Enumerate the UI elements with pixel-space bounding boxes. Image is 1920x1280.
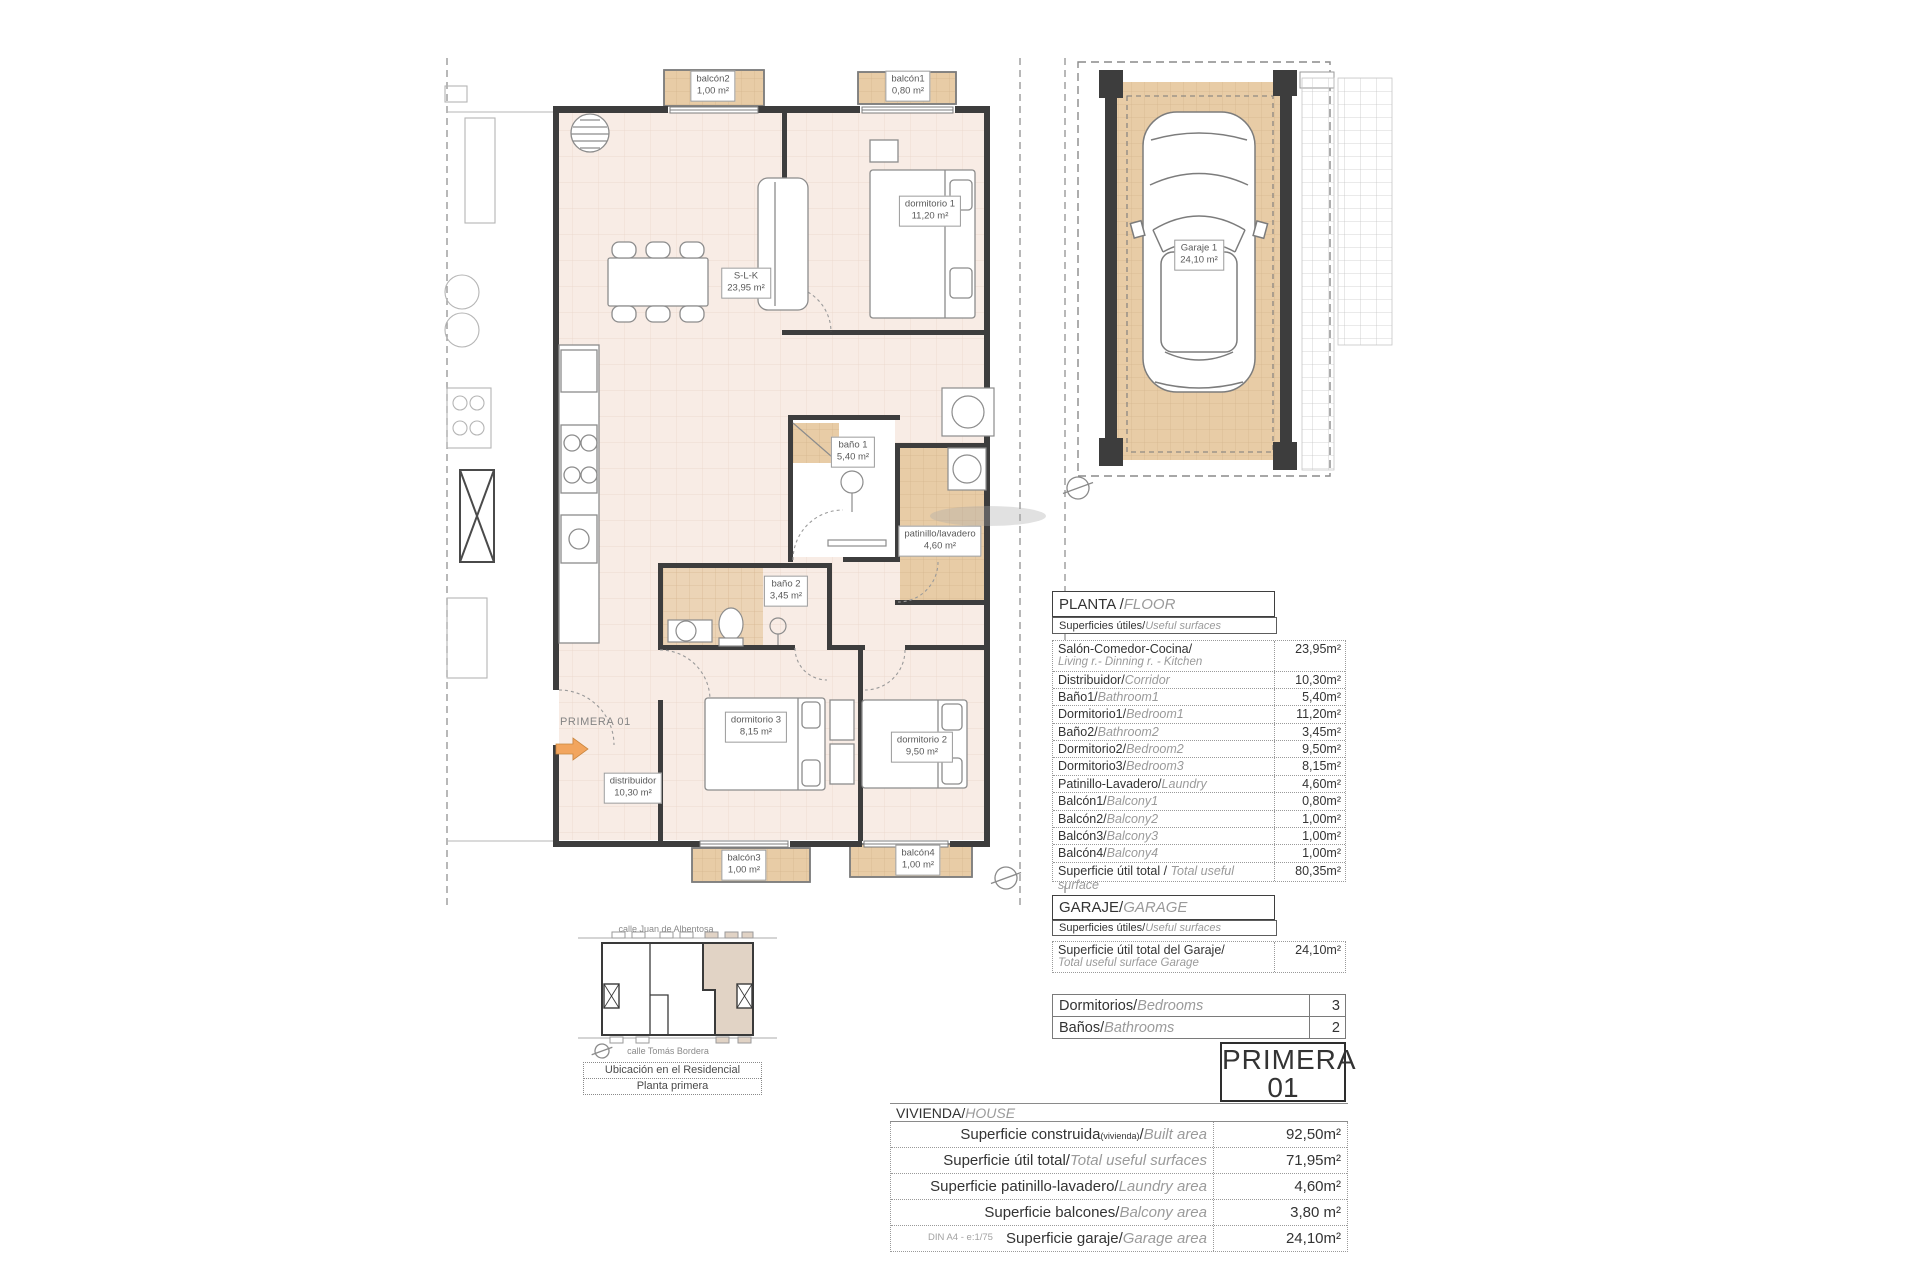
- table-row: Dormitorios/Bedrooms 3: [1053, 995, 1345, 1017]
- room-label-bano1: baño 15,40 m²: [831, 437, 875, 468]
- scale-note: DIN A4 - e:1/75: [928, 1232, 993, 1243]
- garage-section-subtitle: Superficies útiles/Useful surfaces: [1052, 920, 1277, 936]
- floorplan-sheet: balcón21,00 m² balcón10,80 m² S-L-K23,95…: [0, 0, 1920, 1280]
- floor-section-title: PLANTA / FLOOR: [1052, 591, 1275, 617]
- garage-plan: [1078, 62, 1392, 476]
- table-row: Superficie patinillo-lavadero/Laundry ar…: [891, 1174, 1347, 1200]
- garage-surface-table: Superficie útil total del Garaje/Total u…: [1052, 941, 1346, 973]
- room-label-balcon3: balcón31,00 m²: [721, 850, 766, 881]
- rooms-count-table: Dormitorios/Bedrooms 3 Baños/Bathrooms 2: [1052, 994, 1346, 1039]
- room-label-dormitorio2: dormitorio 29,50 m²: [891, 732, 953, 763]
- room-label-garaje1: Garaje 124,10 m²: [1174, 240, 1224, 271]
- room-label-dormitorio3: dormitorio 38,15 m²: [725, 712, 787, 743]
- table-row: Baño2/Bathroom2 3,45m²: [1053, 724, 1345, 741]
- table-row: Dormitorio1/Bedroom1 11,20m²: [1053, 706, 1345, 723]
- location-diagram: [578, 932, 777, 1043]
- street-label-bottom: calle Tomás Bordera: [627, 1046, 709, 1056]
- table-row: Dormitorio2/Bedroom2 9,50m²: [1053, 741, 1345, 758]
- room-label-distribuidor: distribuidor10,30 m²: [604, 773, 662, 804]
- room-label-bano2: baño 23,45 m²: [764, 576, 808, 607]
- room-label-balcon1: balcón10,80 m²: [885, 71, 930, 102]
- watermark-smudge: [930, 506, 1046, 526]
- floor-total-row: Superficie útil total / Total useful sur…: [1053, 863, 1345, 881]
- room-label-dormitorio1: dormitorio 111,20 m²: [899, 196, 961, 227]
- table-row: Patinillo-Lavadero/Laundry 4,60m²: [1053, 776, 1345, 793]
- table-row: Baños/Bathrooms 2: [1053, 1017, 1345, 1038]
- location-caption: Ubicación en el Residencial Planta prime…: [583, 1062, 762, 1095]
- table-row: Dormitorio3/Bedroom3 8,15m²: [1053, 758, 1345, 775]
- room-label-balcon2: balcón21,00 m²: [690, 71, 735, 102]
- room-label-balcon4: balcón41,00 m²: [895, 845, 940, 876]
- street-label-top: calle Juan de Albentosa: [618, 924, 713, 934]
- plan-drawing: [0, 0, 1920, 1280]
- table-row: Balcón2/Balcony2 1,00m²: [1053, 811, 1345, 828]
- table-row: Superficie útil total/Total useful surfa…: [891, 1148, 1347, 1174]
- floor-surfaces-table: Salón-Comedor-Cocina/Living r.- Dinning …: [1052, 640, 1346, 882]
- table-row: Salón-Comedor-Cocina/Living r.- Dinning …: [1053, 641, 1345, 672]
- table-row: Balcón1/Balcony1 0,80m²: [1053, 793, 1345, 810]
- table-row: Balcón4/Balcony4 1,00m²: [1053, 845, 1345, 862]
- room-label-slk: S-L-K23,95 m²: [721, 268, 771, 299]
- table-row: Distribuidor/Corridor 10,30m²: [1053, 672, 1345, 689]
- neighbour-fragments: [445, 86, 553, 841]
- table-row: Baño1/Bathroom1 5,40m²: [1053, 689, 1345, 706]
- elevator-shaft: [460, 470, 494, 562]
- table-row: Superficie útil total del Garaje/Total u…: [1053, 942, 1345, 972]
- table-row: Balcón3/Balcony3 1,00m²: [1053, 828, 1345, 845]
- table-row: Superficie balcones/Balcony area 3,80 m²: [891, 1200, 1347, 1226]
- table-row: Superficie construida(vivienda)/Built ar…: [891, 1122, 1347, 1148]
- unit-badge: PRIMERA 01: [1220, 1042, 1346, 1102]
- floor-section-subtitle: Superficies útiles/Useful surfaces: [1052, 617, 1277, 634]
- room-label-patinillo: patinillo/lavadero4,60 m²: [898, 526, 981, 557]
- house-section-title: VIVIENDA/HOUSE: [890, 1103, 1348, 1122]
- unit-entry-marker: PRIMERA 01: [560, 716, 631, 728]
- garage-section-title: GARAJE/GARAGE: [1052, 895, 1275, 920]
